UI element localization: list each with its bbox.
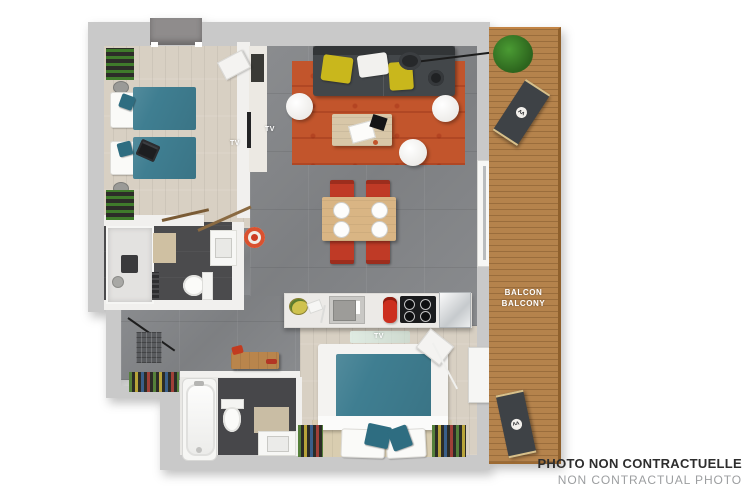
sofa-pillow-white: [357, 52, 390, 78]
shower-fixture: [121, 255, 138, 273]
tv-screen-living-wall: [247, 112, 251, 148]
kitchen-faucet: [356, 301, 360, 314]
wall-top: [88, 22, 490, 46]
toilet1-tank: [202, 272, 213, 300]
shoe-rack: [129, 372, 179, 392]
disclaimer: PHOTO NON CONTRACTUELLE NON CONTRACTUAL …: [537, 456, 742, 487]
bathtub: [182, 378, 217, 461]
lounger-logo-bottom: ʌʌ: [509, 417, 522, 430]
red-sunglasses: [266, 359, 277, 364]
dining-chair-4: [366, 240, 390, 264]
tv-label-living: TV: [265, 126, 275, 133]
wall-left-lower: [106, 296, 121, 398]
kitchen-sink-basin: [333, 300, 356, 321]
pouf-bottom: [399, 139, 427, 166]
bathtub-drain: [196, 447, 202, 453]
apartment-floorplan: TV TV: [0, 0, 749, 500]
bed1-duvet: [133, 87, 196, 130]
balcony-label-fr: BALCON: [489, 287, 558, 298]
window-sill-right: [195, 42, 202, 47]
bathroom2-mat: [254, 407, 289, 433]
balcony-label: BALCON BALCONY: [489, 287, 558, 309]
tv-label-bedroom2: TV: [374, 333, 384, 340]
disclaimer-line-en: NON CONTRACTUAL PHOTO: [537, 473, 742, 487]
plate-2: [371, 202, 388, 219]
disclaimer-line-fr: PHOTO NON CONTRACTUELLE: [537, 456, 742, 471]
balcony-label-en: BALCONY: [489, 298, 558, 309]
red-stool: [244, 227, 265, 248]
washbasin2-sink: [267, 436, 289, 452]
plate-1: [333, 202, 350, 219]
bedroom2-shelf-left: [298, 425, 323, 457]
bedroom1-window: [150, 18, 202, 45]
closet-shelf-items: [251, 54, 264, 82]
coffee-table-red-cup: [373, 140, 378, 145]
arc-lamp-base: [428, 70, 444, 86]
fire-extinguisher: [383, 297, 397, 323]
tv-label-bedroom1: TV: [230, 140, 240, 147]
window-sill-left: [151, 42, 158, 47]
bathtub-faucet: [194, 381, 204, 386]
bedroom2-shelf-right: [432, 425, 466, 457]
kitchen-sink: [329, 296, 365, 324]
burner-1: [404, 299, 415, 310]
washbasin1-sink: [215, 238, 232, 258]
washbasin2: [258, 431, 296, 456]
balcony-plant: [493, 35, 533, 73]
toilet2-bowl: [223, 407, 241, 432]
wall-bathroom2-top: [180, 371, 300, 377]
dining-chair-3: [330, 240, 354, 264]
lounger-logo-top: ʌʌ: [514, 105, 529, 120]
cooktop: [400, 296, 436, 323]
shower-drain: [112, 276, 124, 288]
plate-3: [333, 221, 350, 238]
double-bed-duvet: [336, 354, 431, 418]
arc-lamp-shade: [399, 52, 421, 70]
sliding-door-glass: [483, 166, 486, 260]
bathtub-inner: [186, 384, 215, 456]
fridge: [439, 292, 471, 328]
bedroom1-wardrobe-bottom: [106, 190, 134, 220]
fruit-bowl: [289, 298, 308, 315]
burner-4: [420, 311, 431, 322]
doormat: [136, 332, 162, 363]
floorplan-screenshot: TV TV: [0, 0, 749, 500]
bedroom1-wardrobe-top: [106, 48, 134, 80]
towel-radiator: [152, 272, 159, 300]
pouf-right: [432, 95, 459, 122]
washbasin1: [210, 230, 237, 266]
bathroom1-mat: [153, 233, 176, 263]
sofa-pillow-yellow-left: [320, 54, 353, 84]
pouf-left: [286, 93, 313, 120]
plate-4: [371, 221, 388, 238]
burner-2: [420, 299, 431, 310]
wall-left: [88, 22, 104, 312]
burner-3: [404, 311, 415, 322]
